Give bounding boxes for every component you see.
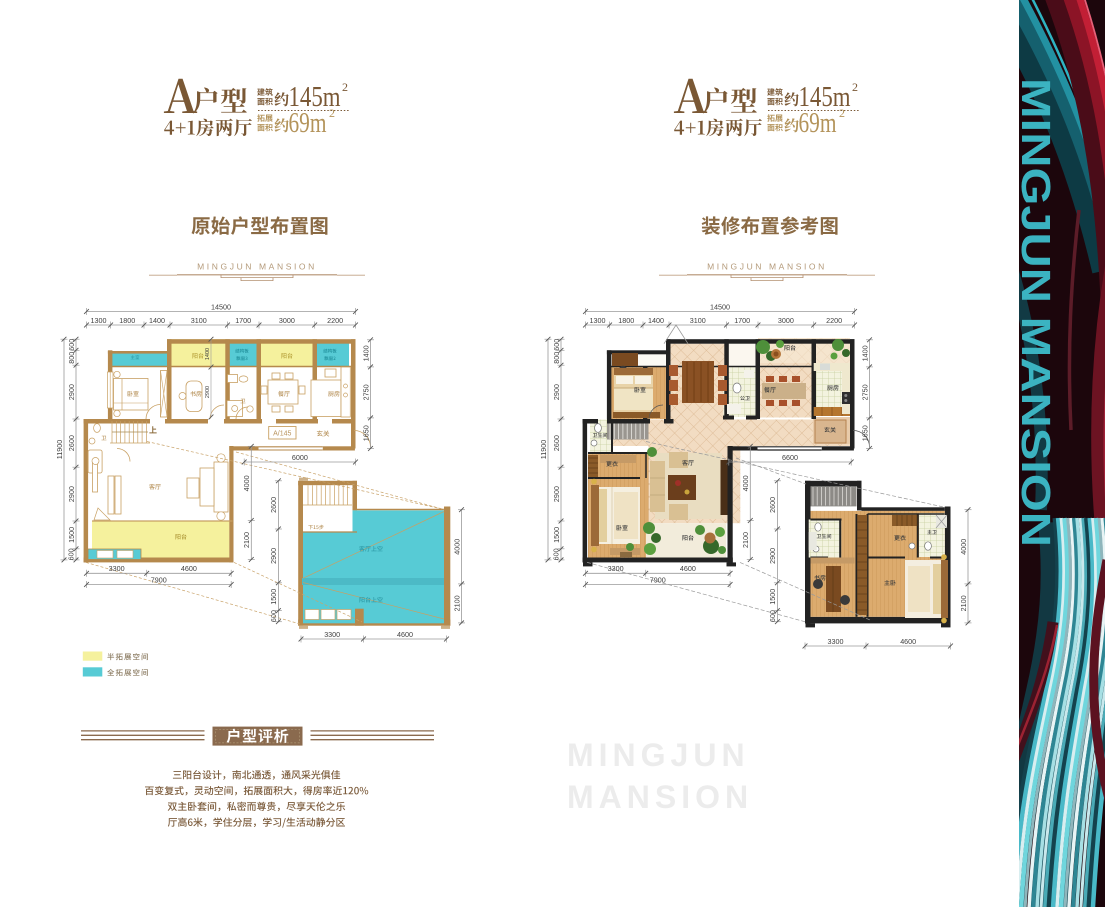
svg-text:1400: 1400 [648,316,664,325]
svg-text:2750: 2750 [361,384,370,400]
svg-text:800: 800 [67,352,76,364]
svg-text:1650: 1650 [860,425,869,441]
svg-text:4600: 4600 [680,564,696,573]
svg-text:1400: 1400 [361,345,370,361]
svg-text:3300: 3300 [608,564,624,573]
svg-text:7900: 7900 [650,575,666,584]
svg-text:1700: 1700 [734,316,750,325]
svg-text:2100: 2100 [242,532,251,548]
svg-text:2: 2 [329,106,335,120]
svg-text:2600: 2600 [552,435,561,451]
svg-text:2750: 2750 [860,384,869,400]
svg-text:1400: 1400 [149,316,165,325]
svg-text:2100: 2100 [741,532,750,548]
svg-text:1800: 1800 [119,316,135,325]
svg-text:MINGJUN MANSION: MINGJUN MANSION [707,262,827,272]
svg-text:600: 600 [67,548,76,560]
svg-text:1500: 1500 [768,589,777,605]
svg-text:2600: 2600 [269,497,278,513]
svg-text:2: 2 [342,80,348,94]
svg-text:MINGJUN: MINGJUN [567,737,750,773]
svg-text:1500: 1500 [67,527,76,543]
svg-text:600: 600 [552,339,561,351]
svg-text:69m: 69m [799,107,837,139]
svg-text:4000: 4000 [452,539,461,555]
svg-text:3100: 3100 [191,316,207,325]
svg-text:1500: 1500 [269,589,278,605]
svg-text:2900: 2900 [552,384,561,400]
svg-text:3300: 3300 [109,564,125,573]
svg-text:3100: 3100 [690,316,706,325]
svg-text:2100: 2100 [452,595,461,611]
svg-text:4000: 4000 [242,475,251,491]
svg-text:2100: 2100 [959,595,968,611]
svg-text:2600: 2600 [67,435,76,451]
svg-text:4600: 4600 [397,630,413,639]
svg-text:4000: 4000 [741,475,750,491]
svg-text:2900: 2900 [552,486,561,502]
svg-text:1650: 1650 [361,425,370,441]
svg-text:3000: 3000 [279,316,295,325]
svg-text:4600: 4600 [900,637,916,646]
svg-text:6600: 6600 [782,453,798,462]
svg-text:MINGJUN MANSION: MINGJUN MANSION [1019,78,1059,547]
svg-text:69m: 69m [289,107,327,139]
svg-text:2200: 2200 [327,316,343,325]
svg-text:MANSION: MANSION [567,779,753,815]
svg-text:1400: 1400 [205,348,211,360]
svg-text:A/145: A/145 [273,431,291,438]
svg-text:7900: 7900 [151,575,167,584]
svg-text:2: 2 [839,106,845,120]
svg-text:2200: 2200 [826,316,842,325]
svg-text:3000: 3000 [778,316,794,325]
svg-text:2900: 2900 [768,548,777,564]
svg-text:MINGJUN MANSION: MINGJUN MANSION [197,262,317,272]
svg-text:11900: 11900 [55,440,64,459]
svg-text:14500: 14500 [710,302,730,311]
svg-text:800: 800 [552,352,561,364]
svg-text:3300: 3300 [324,630,340,639]
svg-text:1500: 1500 [552,527,561,543]
svg-text:2900: 2900 [67,486,76,502]
svg-text:2900: 2900 [269,548,278,564]
svg-text:600: 600 [552,548,561,560]
svg-text:1800: 1800 [618,316,634,325]
svg-text:1300: 1300 [91,316,107,325]
svg-text:4000: 4000 [959,539,968,555]
svg-text:1300: 1300 [590,316,606,325]
svg-text:1700: 1700 [235,316,251,325]
svg-text:1400: 1400 [860,345,869,361]
svg-text:2900: 2900 [205,386,211,398]
svg-text:4600: 4600 [181,564,197,573]
svg-text:6000: 6000 [292,453,308,462]
svg-text:600: 600 [67,339,76,351]
svg-text:2: 2 [852,80,858,94]
svg-text:14500: 14500 [211,302,231,311]
svg-text:3300: 3300 [828,637,844,646]
svg-text:600: 600 [768,610,777,622]
svg-text:11900: 11900 [539,440,548,459]
svg-text:2600: 2600 [768,497,777,513]
svg-text:2900: 2900 [67,384,76,400]
svg-text:600: 600 [269,610,278,622]
